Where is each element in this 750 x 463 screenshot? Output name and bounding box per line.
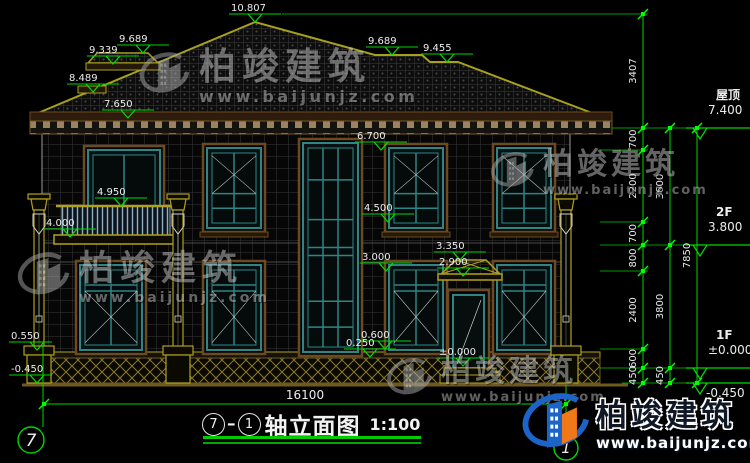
axis-number: 7 [26,431,37,451]
window [200,144,268,237]
elevation-value: 4.950 [97,187,126,198]
title-underline-thin [203,442,421,444]
elevation-value: 0.250 [346,338,375,349]
chain-dim-value: 700 [628,224,639,243]
elevation-value: 7.650 [104,99,133,110]
elevation-marker: 9.689 [117,34,169,53]
elevation-value: 8.489 [69,73,98,84]
elevation-marker: 10.807 [229,3,281,22]
chain-dim-value: 450 [628,366,639,385]
floor-label: 屋顶 [716,88,740,102]
chain-dim-value: 2400 [628,297,639,322]
plinth-pier-cap [551,346,581,355]
company-logo-brand: 柏竣建筑 [596,401,750,432]
dimension-chain: 36003800450 [655,123,675,388]
title-underline-thick [203,436,421,439]
door-step [440,375,500,383]
window [382,144,450,237]
company-logo-icon [518,390,592,461]
chain-dim-value: 450 [655,366,666,385]
floor-level-marker: 3.8002F [686,205,750,256]
elevation-value: 4.500 [364,203,393,214]
title-axis-end-bubble: 1 [238,413,261,436]
elevation-value: 4.000 [46,218,75,229]
elevation-marker: 9.689 [366,36,418,55]
window [299,139,362,356]
house-elevation [22,22,628,385]
plinth-hatch [30,358,600,383]
level-value: ±0.000 [708,343,750,357]
elevation-value: 9.455 [423,43,452,54]
plinth-pier-cap [163,346,193,355]
floor-label: 1F [716,328,733,342]
overall-dim-value: 16100 [286,388,324,402]
company-logo-url: www.baijunjz.com [596,436,750,451]
chain-dim-value: 3407 [628,58,639,83]
elevation-value: 9.339 [89,45,118,56]
eave-dentils [30,121,612,134]
elevation-value: 9.689 [119,34,148,45]
chain-dim-value: 800 [628,248,639,267]
level-value: 3.800 [708,220,742,234]
elevation-value: 10.807 [231,3,266,14]
plinth-pier [554,355,578,383]
chain-dim-value: 2200 [628,173,639,198]
title-axis-start-bubble: 7 [202,413,225,436]
elevation-value: 2.900 [439,257,468,268]
chain-dim-value: 3800 [655,294,666,319]
elevation-value: -0.450 [11,364,43,375]
elevation-value: 3.000 [362,252,391,263]
chain-dim-value: 600 [628,349,639,368]
window [76,261,146,354]
title-dash: – [227,414,236,434]
title-scale: 1:100 [370,415,421,434]
level-value: 7.400 [708,103,742,117]
elevation-value: 6.700 [357,131,386,142]
elevation-value: 3.350 [436,241,465,252]
window [203,261,265,354]
elevation-drawing-canvas: 10.8079.6899.3398.4897.6509.6899.4556.70… [0,0,750,463]
floor-level-marker: 7.400屋顶 [686,88,750,139]
balcony-slab [54,235,176,244]
elevation-value: ±0.000 [439,347,476,358]
company-logo: 柏竣建筑 www.baijunjz.com [518,390,750,461]
chain-dim-value: 3600 [655,174,666,199]
plinth-pier [166,355,190,383]
elevation-marker: 9.455 [421,43,473,62]
window [490,144,558,237]
elevation-value: 0.550 [11,331,40,342]
elevation-value: 9.689 [368,36,397,47]
balcony-railing [62,206,170,235]
floor-level-marker: ±0.0001F [686,328,750,379]
eave-tile-row [30,112,612,121]
dimension-chain: 340770022007008002400600450 [628,9,648,388]
chain-dim-value: 7850 [682,243,693,268]
floor-label: 2F [716,205,733,219]
door-step [444,368,496,375]
chain-dim-value: 700 [628,129,639,148]
